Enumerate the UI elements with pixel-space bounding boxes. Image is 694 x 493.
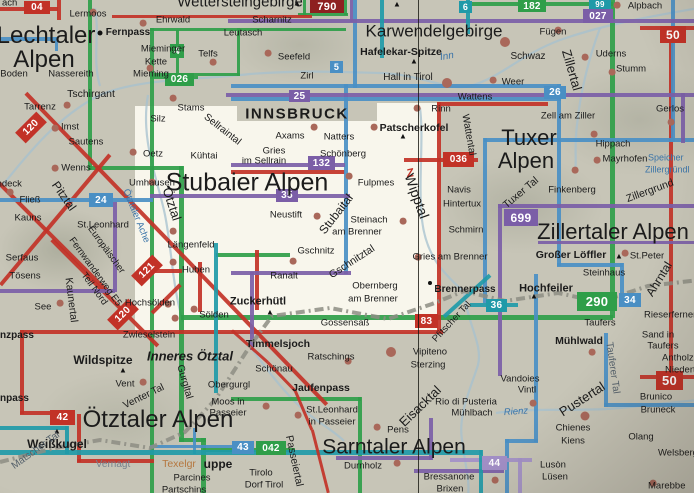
place-label: Wildspitze — [73, 354, 132, 366]
settlement-dot-icon — [668, 119, 675, 126]
place-label: Nassereith — [48, 69, 93, 79]
map-sheet-badge: 290 — [577, 292, 617, 311]
region-title: Lechtaler — [0, 24, 95, 48]
place-label: Gossensaß — [321, 318, 370, 328]
region-title: Tuxer — [501, 127, 556, 149]
settlement-dot-icon — [130, 149, 137, 156]
valley-label: Rienz — [504, 406, 529, 417]
place-label: Hippach — [596, 139, 631, 149]
place-label: Ehrwald — [156, 15, 190, 25]
place-label: Rio di Pusteria — [435, 397, 497, 407]
settlement-dot-icon — [170, 228, 177, 235]
place-label: Serfaus — [6, 253, 39, 263]
place-label: Axams — [275, 131, 304, 141]
map-sheet-badge: 99 — [589, 0, 611, 9]
settlement-dot-icon — [581, 412, 590, 421]
place-label: St.Leonhard — [77, 220, 129, 230]
map-sheet-badge: 027 — [583, 9, 613, 23]
place-label: Wenns — [61, 163, 90, 173]
place-label: St.Leonhard — [306, 405, 358, 415]
sheet-boundary-line — [557, 263, 623, 267]
place-label: Durnholz — [344, 461, 382, 471]
sheet-boundary-line — [150, 445, 236, 448]
place-label: Zillergründl — [645, 166, 690, 175]
place-label: Mühlwald — [555, 336, 603, 347]
place-label: Oetz — [143, 149, 163, 159]
place-label: Timmelsjoch — [246, 339, 310, 350]
place-label: Parcines — [174, 473, 211, 483]
place-label: Niedertal — [665, 365, 694, 375]
place-label: Vent — [115, 379, 134, 389]
settlement-dot-icon — [594, 157, 601, 164]
river-path — [95, 8, 100, 86]
map-sheet-badge: 34 — [619, 293, 641, 307]
map-canvas: 0479069918202750450262526036132352469912… — [0, 0, 694, 493]
place-label: Neustift — [270, 210, 302, 220]
settlement-dot-icon — [265, 50, 272, 57]
place-label: npass — [0, 394, 29, 404]
place-label: Jaufenpass — [292, 383, 350, 394]
settlement-dot-icon — [263, 403, 270, 410]
place-label: Schönau — [255, 364, 293, 374]
place-label: Telfs — [198, 49, 218, 59]
settlement-dot-icon — [591, 131, 598, 138]
place-label: im Sellrain — [242, 156, 286, 166]
sheet-boundary-line — [57, 0, 61, 20]
place-label: Leutasch — [224, 28, 263, 38]
place-label: Steinach — [351, 215, 388, 225]
place-label: Tösens — [9, 271, 40, 281]
place-label: Mayrhofen — [603, 154, 648, 164]
sheet-boundary-line — [344, 0, 347, 15]
place-label: Vandoies — [501, 374, 540, 384]
sheet-boundary-line — [113, 202, 117, 292]
sheet-boundary-line — [350, 0, 353, 22]
place-label: Obernberg — [352, 281, 397, 291]
valley-label: Wattental — [459, 114, 476, 157]
place-label: Patscherkofel — [380, 123, 449, 134]
place-label: Mühlbach — [451, 408, 492, 418]
place-label: Gries am Brenner — [413, 252, 488, 262]
sheet-boundary-line — [498, 204, 694, 208]
place-label: Lusòn — [540, 460, 566, 470]
valley-label: Passeiertal — [283, 434, 304, 487]
place-label: Kette — [145, 57, 167, 67]
place-label: Taufers — [647, 341, 678, 351]
place-label: Chienes — [556, 423, 591, 433]
place-label: Partschins — [162, 485, 206, 493]
place-label: Hochfeiler — [519, 284, 573, 295]
sheet-boundary-line — [518, 458, 522, 493]
place-label: Moos in — [211, 397, 244, 407]
region-title: Zillertaler Alpen — [537, 221, 689, 243]
map-sheet-badge: 24 — [89, 193, 113, 207]
place-label: Antholz — [662, 353, 694, 363]
place-label: am Brenner — [332, 227, 382, 237]
map-sheet-badge: 699 — [504, 209, 538, 226]
region-title: Alpen — [498, 150, 554, 172]
place-label: Stumm — [616, 64, 646, 74]
place-label: Navis — [447, 185, 471, 195]
place-label: Vintl — [518, 385, 536, 395]
place-label: Gschnitz — [298, 246, 335, 256]
settlement-dot-icon — [52, 125, 59, 132]
place-label: Passeier — [210, 408, 247, 418]
place-label: Mieminger — [141, 44, 185, 54]
peak-triangle-icon: ▲ — [266, 308, 274, 317]
place-label: Lüsen — [542, 472, 568, 482]
place-label: Obergurgl — [208, 380, 250, 390]
valley-label: Zillergrund — [625, 178, 675, 205]
sheet-boundary-line — [303, 0, 306, 15]
place-label: uppe — [204, 458, 233, 470]
settlement-dot-icon — [492, 477, 499, 484]
settlement-dot-icon — [400, 218, 407, 225]
place-label: Taufers — [584, 318, 615, 328]
map-sheet-badge: 026 — [165, 73, 194, 86]
place-label: Boden — [0, 69, 27, 79]
peak-triangle-icon: ▲ — [393, 0, 401, 9]
settlement-dot-icon — [7, 189, 14, 196]
pass-dot-icon — [428, 281, 432, 285]
place-label: St.Peter — [630, 251, 664, 261]
sheet-boundary-line — [681, 93, 685, 143]
peak-triangle-icon: ▲ — [615, 252, 623, 261]
settlement-dot-icon — [170, 259, 177, 266]
place-label: Brixen — [437, 484, 464, 493]
region-title: Sarntaler Alpen — [322, 437, 466, 458]
place-label: Schwaz — [510, 52, 545, 62]
settlement-dot-icon — [57, 300, 64, 307]
map-sheet-badge: 26 — [544, 86, 566, 99]
place-label: Sautens — [69, 137, 104, 147]
map-sheet-badge: 50 — [660, 26, 686, 43]
map-sheet-badge: 42 — [50, 410, 75, 425]
place-label: Großer Löffler — [536, 250, 607, 261]
place-label: Brennerpass — [434, 285, 495, 295]
settlement-dot-icon — [140, 20, 147, 27]
place-label: Silz — [150, 114, 165, 124]
settlement-dot-icon — [140, 379, 147, 386]
place-label: Alpbach — [628, 1, 662, 11]
settlement-dot-icon — [295, 412, 302, 419]
place-label: Ratschings — [308, 352, 355, 362]
settlement-dot-icon — [314, 213, 321, 220]
place-label: Zwieselstein — [123, 330, 175, 340]
place-label: Längenfeld — [167, 240, 214, 250]
map-sheet-badge: 182 — [518, 0, 546, 12]
map-sheet-badge: 790 — [310, 0, 344, 13]
map-sheet-badge: 25 — [289, 90, 310, 102]
place-label: Sand in — [642, 330, 674, 340]
map-sheet-badge: 44 — [482, 456, 507, 470]
pass-dot-icon — [98, 31, 103, 36]
place-label: Mieming — [133, 69, 169, 79]
settlement-dot-icon — [172, 315, 179, 322]
place-label: Bressanone — [424, 472, 475, 482]
place-label: Bruneck — [641, 405, 676, 415]
settlement-dot-icon — [52, 165, 59, 172]
settlement-dot-icon — [442, 78, 452, 88]
sheet-boundary-line — [437, 102, 441, 332]
place-label: Vernagt — [96, 460, 130, 470]
sheet-boundary-line — [437, 102, 548, 106]
sheet-boundary-line — [216, 253, 290, 257]
map-sheet-badge: 042 — [256, 441, 286, 455]
place-label: Scharnitz — [252, 15, 292, 25]
place-label: Schönberg — [320, 149, 366, 159]
settlement-dot-icon — [614, 2, 621, 9]
place-label: Lermoos — [70, 9, 107, 19]
settlement-dot-icon — [582, 54, 589, 61]
settlement-dot-icon — [64, 102, 71, 109]
place-label: in Passeier — [309, 417, 356, 427]
place-label: Rinn — [431, 104, 451, 114]
place-label: Kiens — [561, 436, 585, 446]
place-label: Zuckerhütl — [230, 297, 286, 308]
settlement-dot-icon — [191, 306, 198, 313]
place-label: Hafelekar-Spitze — [360, 47, 442, 58]
valley-label: Gurgltal — [174, 364, 193, 400]
place-label: See — [35, 302, 52, 312]
place-label: Landeck — [0, 179, 22, 189]
sheet-boundary-line — [498, 204, 502, 376]
settlement-dot-icon — [374, 424, 381, 431]
place-label: Kühtai — [191, 151, 218, 161]
region-title: INNSBRUCK — [245, 107, 349, 122]
place-label: Tschirgant — [67, 89, 115, 100]
place-label: Fernpass — [106, 28, 150, 38]
place-label: Hall in Tirol — [383, 73, 432, 83]
region-title: Stubaier Alpen — [166, 171, 329, 196]
place-label: Uderns — [596, 49, 627, 59]
place-label: Olang — [628, 432, 653, 442]
settlement-dot-icon — [386, 347, 396, 357]
place-label: Tarrenz — [24, 102, 56, 112]
settlement-dot-icon — [414, 105, 421, 112]
place-label: Finkenberg — [548, 185, 596, 195]
settlement-dot-icon — [394, 460, 401, 467]
sheet-boundary-line — [505, 439, 538, 443]
settlement-dot-icon — [530, 400, 537, 407]
sheet-boundary-line — [231, 97, 561, 101]
place-label: Ranalt — [270, 271, 297, 281]
map-sheet-badge: 43 — [232, 441, 254, 454]
place-label: Seefeld — [278, 52, 310, 62]
settlement-dot-icon — [589, 349, 596, 356]
place-label: Inneres Ötztal — [147, 350, 233, 363]
place-label: Brunico — [640, 392, 672, 402]
place-label: nzpass — [0, 331, 34, 341]
sheet-boundary-line — [353, 0, 357, 88]
map-sheet-badge: 04 — [24, 1, 50, 14]
place-label: Dorf Tirol — [245, 480, 284, 490]
place-label: Wattens — [458, 92, 493, 102]
settlement-dot-icon — [290, 258, 297, 265]
place-label: Kauns — [15, 213, 42, 223]
settlement-dot-icon — [210, 59, 217, 66]
place-label: Gerlos — [656, 104, 684, 114]
place-label: am Brenner — [348, 294, 398, 304]
place-label: Stams — [178, 103, 205, 113]
settlement-dot-icon — [371, 124, 378, 131]
map-sheet-badge: 120 — [15, 112, 47, 144]
place-label: Natters — [324, 132, 355, 142]
place-label: Hochsölden — [125, 298, 175, 308]
place-label: Weer — [502, 77, 525, 87]
settlement-dot-icon — [170, 95, 177, 102]
peak-triangle-icon: ▲ — [410, 57, 418, 66]
place-label: Fulpmes — [358, 178, 394, 188]
place-label: Huben — [182, 265, 210, 275]
settlement-dot-icon — [346, 173, 353, 180]
place-label: Tirolo — [249, 468, 272, 478]
place-label: Zirl — [300, 71, 313, 81]
map-sheet-badge: 5 — [330, 61, 343, 73]
valley-label: Kaunertal — [63, 277, 79, 323]
place-label: Fügen — [540, 27, 567, 37]
place-label: Sterzing — [411, 360, 446, 370]
settlement-dot-icon — [311, 124, 318, 131]
meridian-line — [418, 0, 419, 493]
place-label: Welsberg — [658, 448, 694, 458]
place-label: Zell am Ziller — [541, 111, 595, 121]
place-label: Imst — [61, 122, 79, 132]
region-title: Karwendelgebirge — [365, 23, 502, 40]
place-label: Speicher — [648, 154, 684, 163]
place-label: Steinhaus — [583, 268, 625, 278]
settlement-dot-icon — [572, 167, 579, 174]
place-label: ach — [2, 0, 17, 8]
river-path — [461, 293, 479, 493]
map-sheet-badge: 6 — [459, 1, 472, 13]
place-label: Marebbe — [648, 481, 686, 491]
settlement-dot-icon — [609, 69, 616, 76]
place-label: Hintertux — [443, 199, 481, 209]
place-label: Sölden — [199, 310, 229, 320]
valley-label: Inn — [439, 51, 454, 63]
place-label: Texelgr — [162, 459, 196, 470]
region-title: Wettersteingebirge — [177, 0, 303, 10]
place-label: Rieserferner — [644, 310, 694, 320]
map-sheet-badge: 36 — [486, 299, 507, 312]
settlement-dot-icon — [490, 77, 497, 84]
place-label: Schmirn — [449, 225, 484, 235]
place-label: Fließ — [19, 195, 40, 205]
